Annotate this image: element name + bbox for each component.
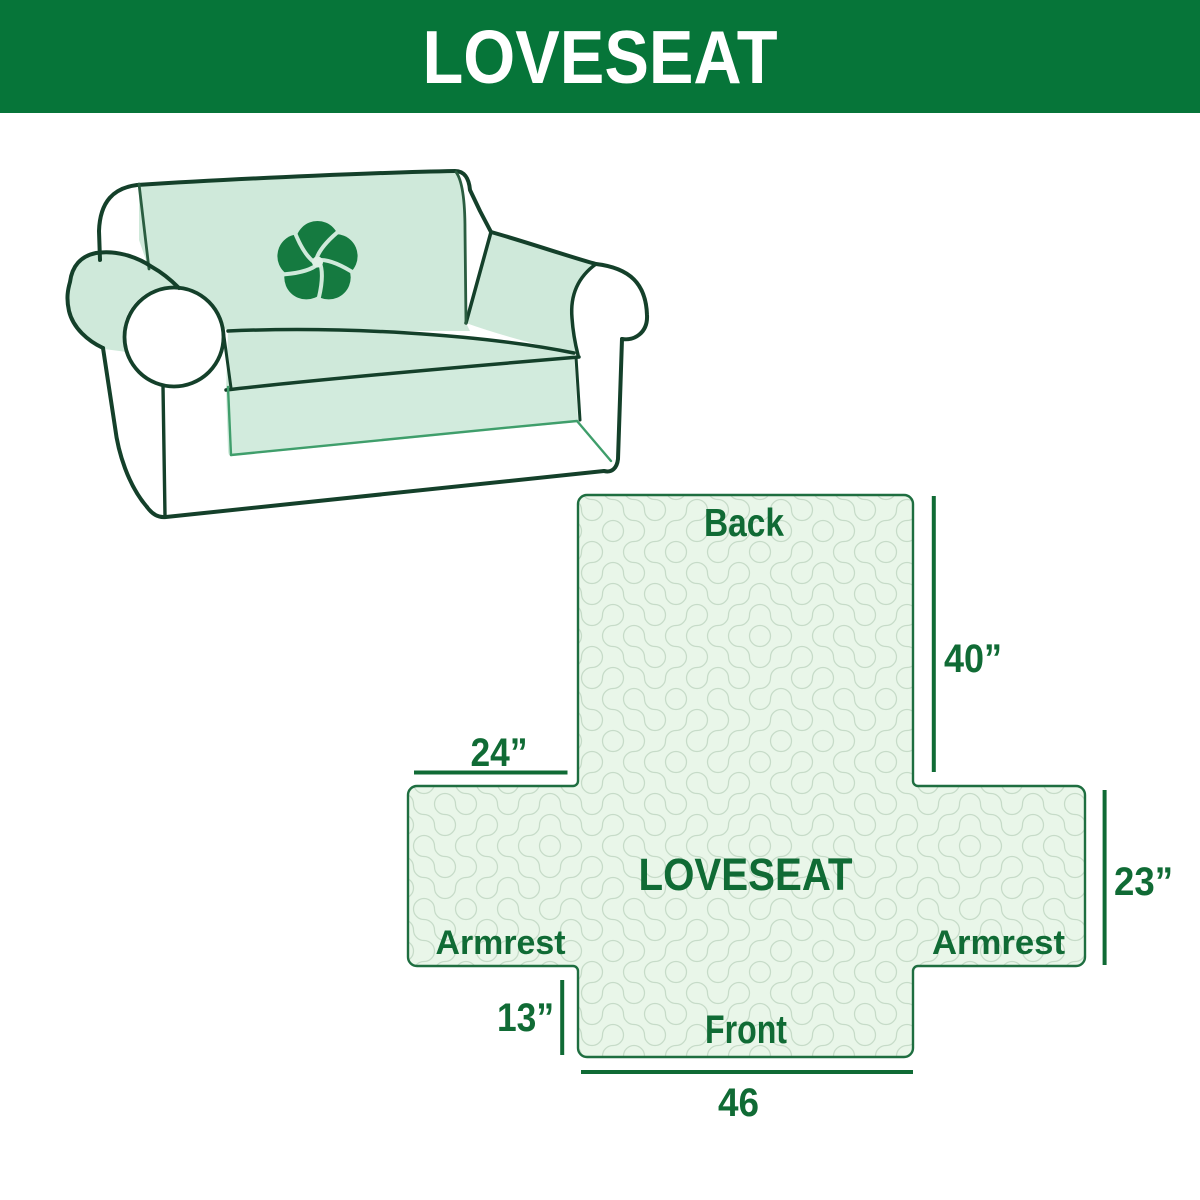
svg-text:Front: Front bbox=[705, 1008, 787, 1052]
svg-text:23”: 23” bbox=[1114, 860, 1173, 904]
svg-text:40”: 40” bbox=[944, 637, 1002, 681]
svg-text:46: 46 bbox=[718, 1081, 759, 1125]
svg-text:24”: 24” bbox=[471, 731, 528, 775]
svg-text:LOVESEAT: LOVESEAT bbox=[639, 849, 853, 900]
svg-text:Armrest: Armrest bbox=[932, 924, 1065, 962]
svg-text:Back: Back bbox=[704, 502, 784, 545]
svg-text:LOVESEAT: LOVESEAT bbox=[423, 15, 778, 99]
svg-text:Armrest: Armrest bbox=[436, 924, 566, 962]
svg-text:13”: 13” bbox=[497, 996, 554, 1040]
